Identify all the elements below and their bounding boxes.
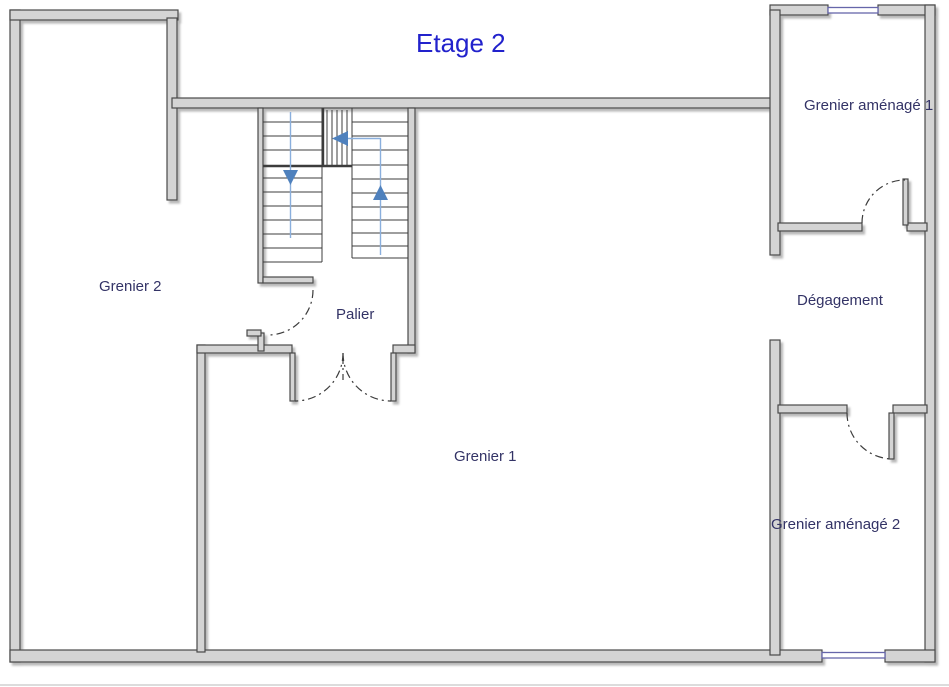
wall-main-top	[172, 98, 775, 108]
outer-wall-bottom-b	[885, 650, 935, 662]
floor-plan-drawing: Etage 2 Grenier 2 Palier Grenier 1 Greni…	[0, 0, 949, 687]
wall-degagement-ga2-left	[778, 405, 847, 413]
outer-wall-left	[10, 10, 20, 662]
door-arc-ga1	[862, 180, 905, 223]
wall-ga1-degagement-left	[778, 223, 862, 231]
staircase	[263, 108, 408, 262]
bottom-edge-rule	[0, 684, 949, 686]
room-label-degagement: Dégagement	[797, 292, 884, 309]
door-leaf-ga2	[889, 413, 894, 459]
wall-palier-right	[408, 108, 415, 353]
double-door-leaf-left	[290, 353, 295, 401]
wall-degagement-ga2-right	[893, 405, 927, 413]
wall-palier-bottom-right	[393, 345, 415, 353]
wall-rightstrip-left-upper	[770, 10, 780, 255]
room-label-palier: Palier	[336, 306, 374, 323]
wall-grenier2-right-upper	[167, 18, 177, 200]
outer-wall-top-left	[10, 10, 178, 20]
door-leaf-grenier2	[247, 330, 261, 336]
window-bottom-right	[822, 653, 885, 659]
stair-treads-left-flight	[263, 122, 322, 262]
window-top-right	[828, 8, 878, 14]
wall-ga1-degagement-right	[907, 223, 927, 231]
double-door-leaf-right	[391, 353, 396, 401]
room-label-grenier-amenage-2: Grenier aménagé 2	[771, 516, 900, 533]
walls	[10, 5, 935, 662]
door-arc-grenier2-palier	[268, 290, 313, 335]
wall-stair-left	[258, 108, 263, 283]
room-label-grenier-2: Grenier 2	[99, 278, 162, 295]
door-arc-double-right	[343, 353, 391, 401]
page-title: Etage 2	[416, 28, 506, 58]
wall-grenier2-grenier1	[197, 345, 205, 652]
room-label-grenier-amenage-1: Grenier aménagé 1	[804, 97, 933, 114]
outer-wall-bottom-a	[10, 650, 822, 662]
door-leaf-ga1	[903, 179, 908, 225]
wall-stair-left-stub	[263, 277, 313, 283]
door-arc-double-left	[295, 353, 343, 401]
stair-arrow-left-icon	[332, 131, 348, 146]
wall-palier-bottom-left	[197, 345, 292, 353]
floor-plan-page: Etage 2 Grenier 2 Palier Grenier 1 Greni…	[0, 0, 949, 687]
door-arc-ga2	[847, 413, 893, 459]
wall-rightstrip-left-lower	[770, 340, 780, 655]
room-label-grenier-1: Grenier 1	[454, 448, 517, 465]
